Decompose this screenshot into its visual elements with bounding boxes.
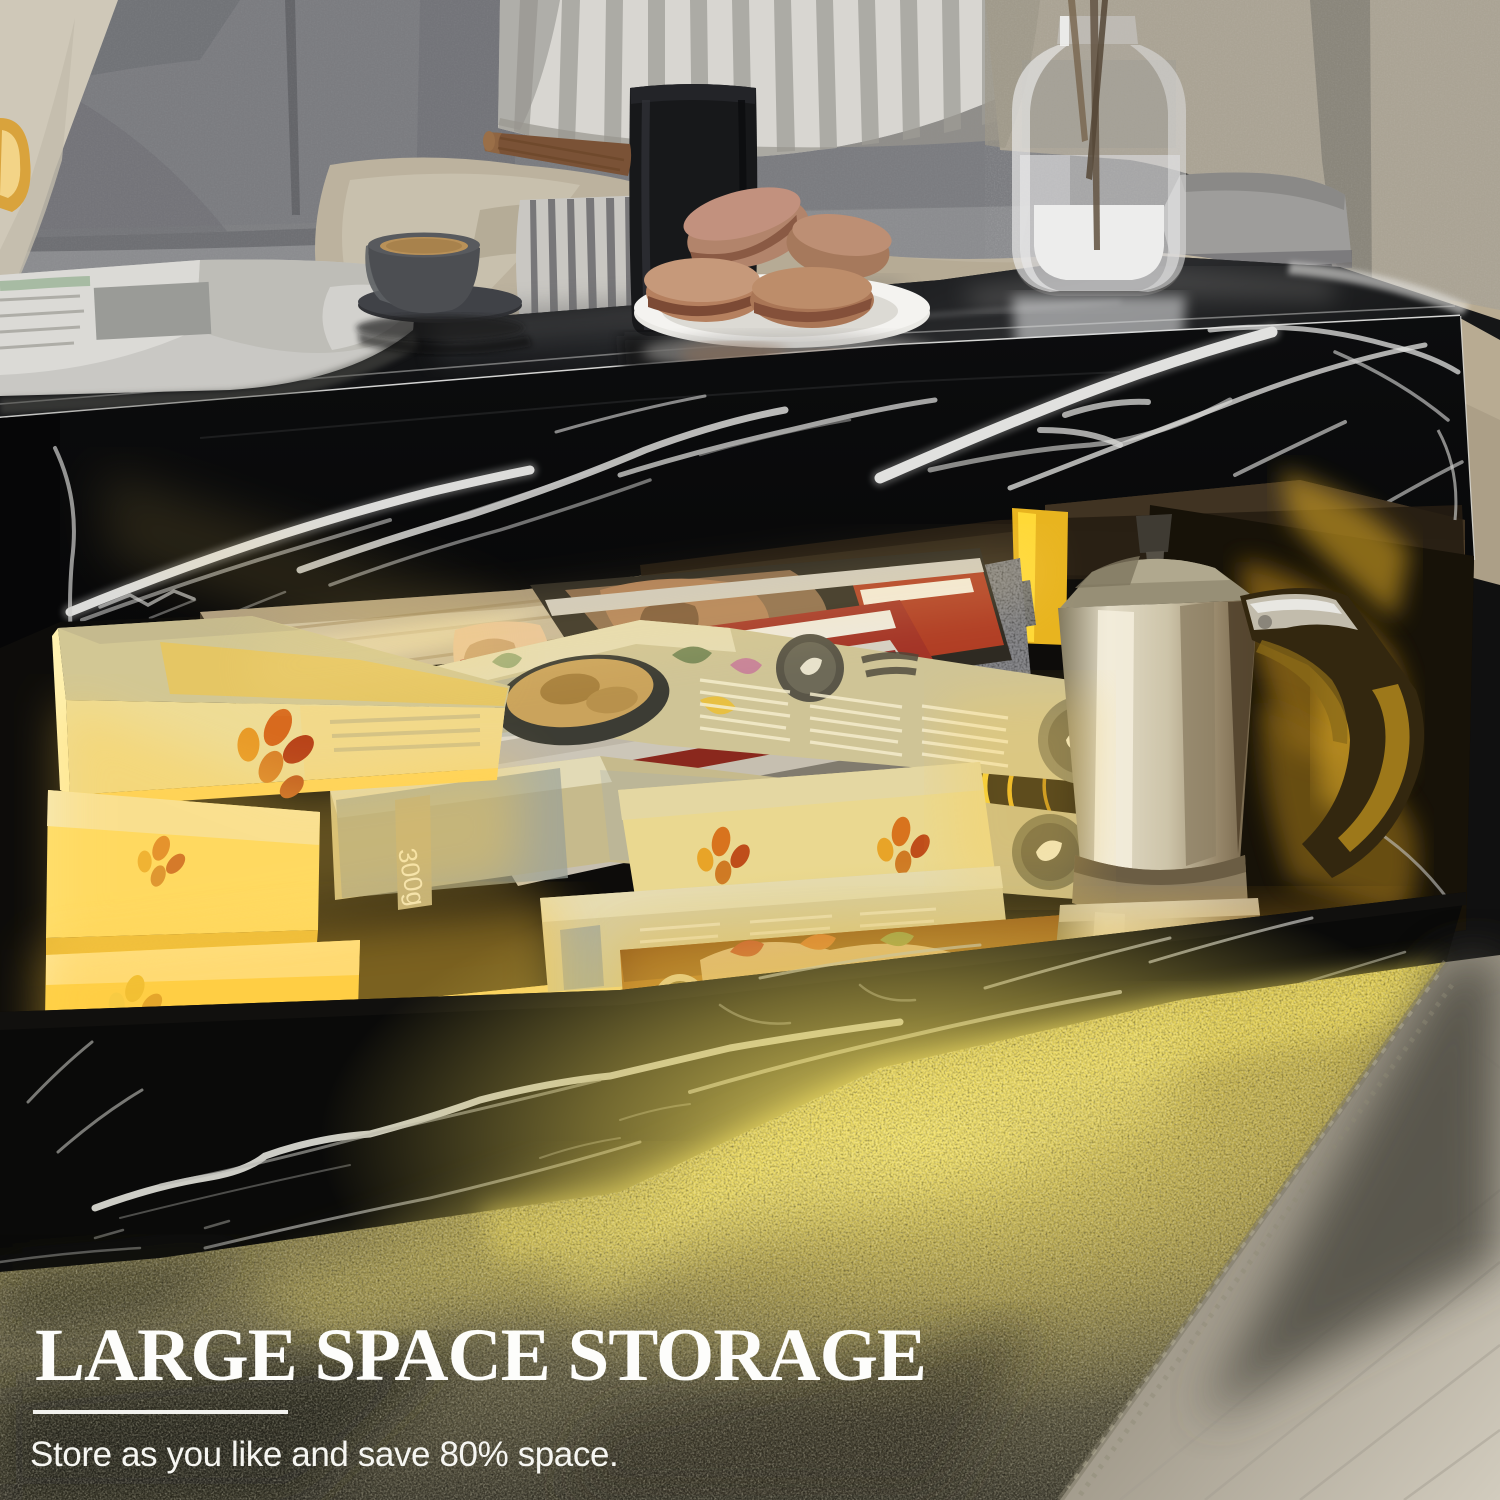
svg-text:LARGE SPACE STORAGE: LARGE SPACE STORAGE [35,1314,926,1397]
svg-text:Store as you like and save 80%: Store as you like and save 80% space. [30,1435,618,1474]
